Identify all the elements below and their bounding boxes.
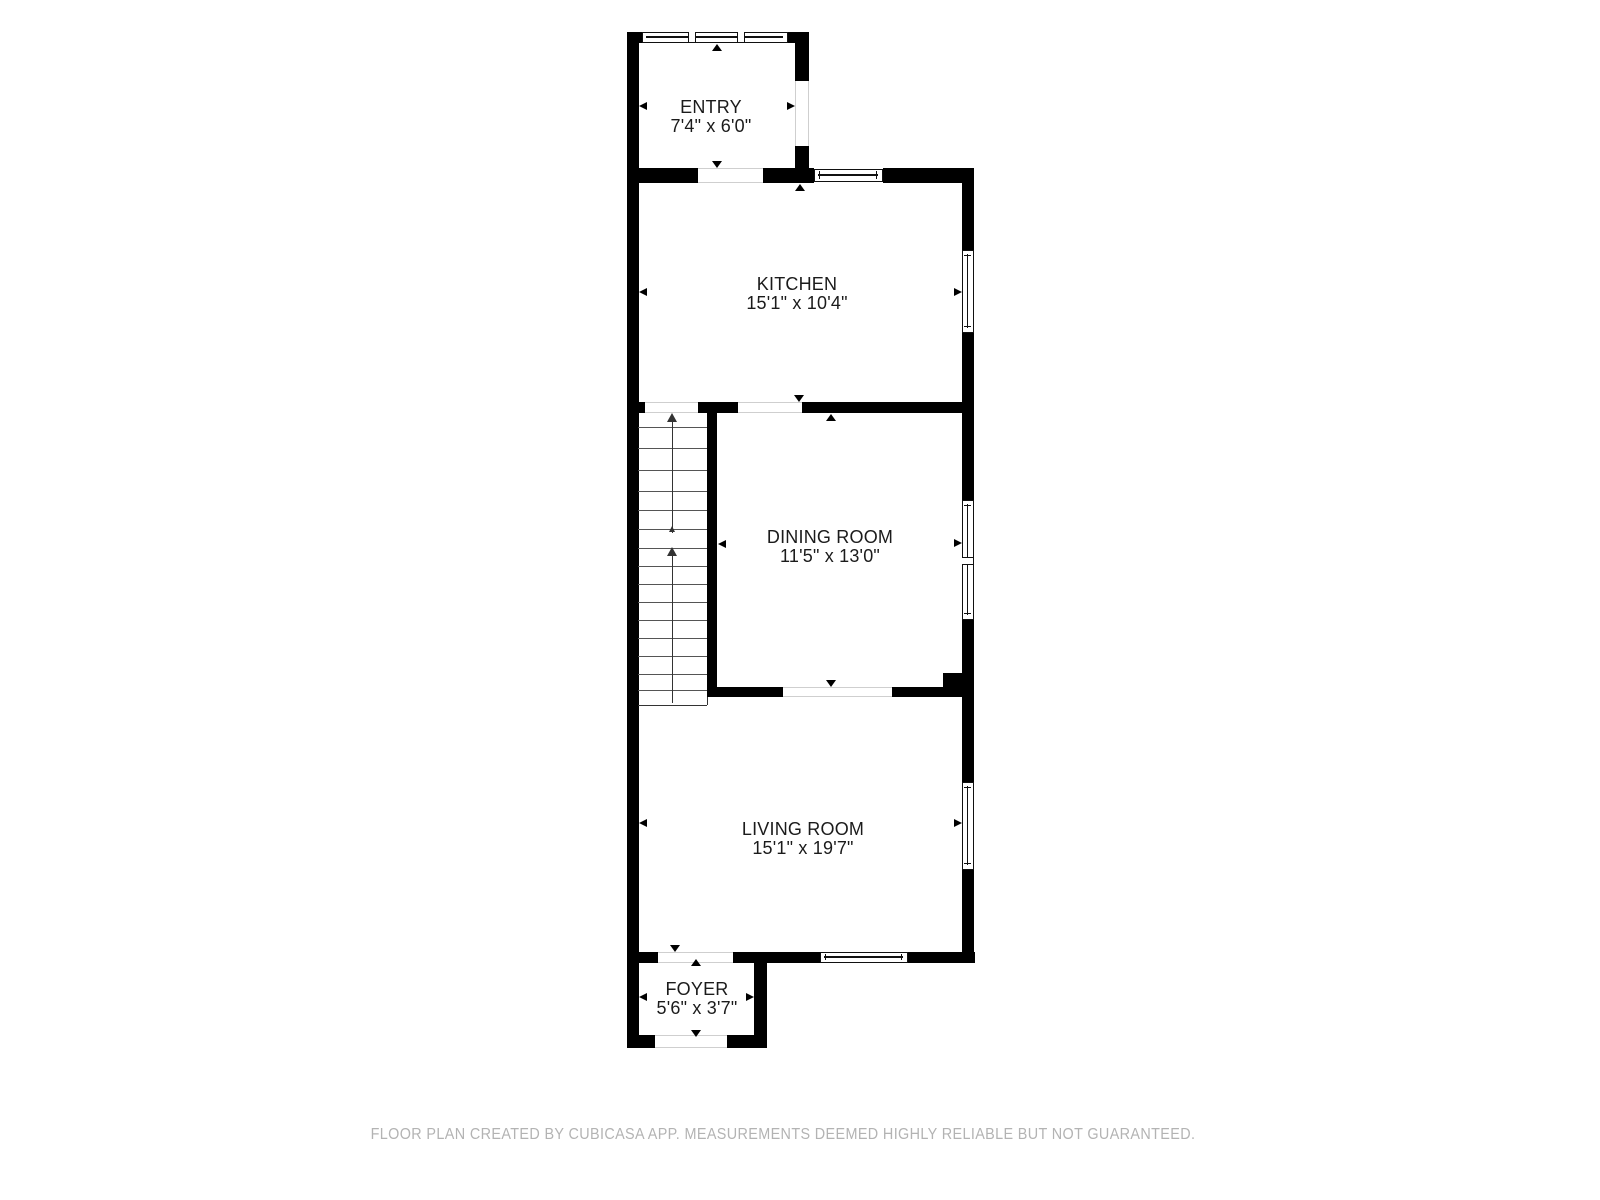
stair-tread	[638, 448, 707, 449]
measure-arrow-icon-foyer-top	[691, 959, 701, 966]
window-icon	[820, 952, 908, 963]
stair-tread	[638, 427, 707, 428]
room-name: FOYER	[657, 980, 738, 999]
measure-arrow-icon-dining-top	[826, 414, 836, 421]
measure-arrow-icon-dining-right	[954, 539, 962, 547]
room-label-foyer: FOYER5'6" x 3'7"	[657, 980, 738, 1018]
door-opening	[738, 402, 802, 413]
window-icon	[962, 782, 974, 870]
measure-arrow-icon-entry-bottom	[712, 161, 722, 168]
wall	[763, 168, 814, 183]
wall	[795, 32, 809, 81]
room-label-living-room: LIVING ROOM15'1" x 19'7"	[742, 820, 864, 858]
window-frame-cap	[825, 954, 826, 960]
stair-tread	[638, 690, 707, 691]
floor-plan: ENTRY7'4" x 6'0"KITCHEN15'1" x 10'4"DINI…	[0, 0, 1600, 1200]
window-frame-cap	[876, 171, 877, 179]
stair-tread	[638, 584, 707, 585]
measure-arrow-icon-dining-left	[718, 540, 726, 548]
stair-up-arrow-icon	[667, 547, 677, 556]
room-dimensions: 15'1" x 19'7"	[742, 839, 864, 858]
room-dimensions: 11'5" x 13'0"	[767, 547, 893, 566]
wall	[717, 687, 783, 697]
stair-tread	[638, 638, 707, 639]
measure-arrow-icon-entry-right	[787, 102, 795, 110]
window-pane-line	[818, 174, 878, 176]
measure-arrow-icon-kitchen-bottom	[794, 395, 804, 402]
window-pane-line	[967, 254, 969, 328]
stair-tread	[638, 566, 707, 567]
measure-arrow-icon-foyer-right	[746, 993, 754, 1001]
room-name: LIVING ROOM	[742, 820, 864, 839]
measure-arrow-icon-kitchen-top	[795, 184, 805, 191]
wall	[627, 402, 645, 413]
wall	[802, 402, 974, 413]
door-opening	[795, 81, 809, 146]
wall	[698, 402, 738, 413]
stair-tread	[638, 674, 707, 675]
measure-arrow-icon-entry-top	[712, 44, 722, 51]
room-name: DINING ROOM	[767, 528, 893, 547]
window-mullion	[737, 32, 745, 42]
window-frame-cap	[964, 255, 971, 256]
stair-tread	[638, 620, 707, 621]
measure-arrow-icon-foyer-bottom	[691, 1030, 701, 1037]
stair-direction-line	[672, 532, 673, 533]
window-frame-cap	[819, 171, 820, 179]
wall	[627, 952, 658, 963]
wall	[627, 1035, 655, 1048]
wall	[943, 673, 974, 697]
stair-tread	[638, 491, 707, 492]
measure-arrow-icon-kitchen-right	[954, 288, 962, 296]
room-label-entry: ENTRY7'4" x 6'0"	[671, 98, 752, 136]
window-frame-cap	[964, 787, 971, 788]
room-dimensions: 15'1" x 10'4"	[746, 294, 847, 313]
wall	[627, 32, 639, 1048]
stair-tread	[638, 470, 707, 471]
measure-arrow-icon-living-right	[954, 819, 962, 827]
window-icon	[962, 500, 974, 620]
window-pane-line	[824, 956, 903, 958]
room-name: ENTRY	[671, 98, 752, 117]
measure-arrow-icon-living-bottom	[670, 945, 680, 952]
measure-arrow-icon-foyer-left	[639, 993, 647, 1001]
window-frame-cap	[964, 505, 971, 506]
room-name: KITCHEN	[746, 275, 847, 294]
stair-direction-line	[672, 422, 673, 528]
disclaimer-text: FLOOR PLAN CREATED BY CUBICASA APP. MEAS…	[371, 1126, 1196, 1144]
window-mullion	[962, 557, 973, 565]
room-dimensions: 5'6" x 3'7"	[657, 999, 738, 1018]
wall	[707, 402, 717, 697]
wall	[908, 952, 975, 963]
window-frame-cap	[901, 954, 902, 960]
room-label-dining-room: DINING ROOM11'5" x 13'0"	[767, 528, 893, 566]
window-frame-cap	[964, 326, 971, 327]
window-pane-line	[967, 786, 969, 865]
window-frame-cap	[964, 863, 971, 864]
window-mullion	[688, 32, 696, 42]
window-icon	[962, 250, 974, 333]
stair-tread	[638, 656, 707, 657]
wall	[883, 168, 974, 183]
measure-arrow-icon-dining-bottom	[826, 680, 836, 687]
stair-bottom-edge	[638, 705, 707, 706]
floorplan-page: ENTRY7'4" x 6'0"KITCHEN15'1" x 10'4"DINI…	[0, 0, 1600, 1200]
stair-up-arrow-icon	[667, 413, 677, 422]
stair-tread	[638, 510, 707, 511]
wall	[727, 1035, 767, 1048]
window-icon	[642, 32, 788, 43]
wall	[733, 952, 820, 963]
measure-arrow-icon-kitchen-left	[639, 288, 647, 296]
stair-tread	[638, 602, 707, 603]
door-opening	[645, 402, 698, 413]
door-opening	[698, 168, 763, 183]
window-frame-cap	[964, 613, 971, 614]
window-icon	[814, 169, 883, 182]
wall	[754, 952, 767, 1048]
measure-arrow-icon-entry-left	[639, 102, 647, 110]
stair-up-arrow-icon	[669, 526, 675, 532]
stair-direction-line	[672, 556, 673, 703]
room-dimensions: 7'4" x 6'0"	[671, 117, 752, 136]
wall	[627, 32, 642, 43]
window-pane-line	[646, 36, 783, 38]
measure-arrow-icon-living-left	[639, 819, 647, 827]
door-opening	[783, 687, 892, 697]
room-label-kitchen: KITCHEN15'1" x 10'4"	[746, 275, 847, 313]
wall	[627, 168, 698, 183]
stair-side-edge	[707, 697, 708, 705]
